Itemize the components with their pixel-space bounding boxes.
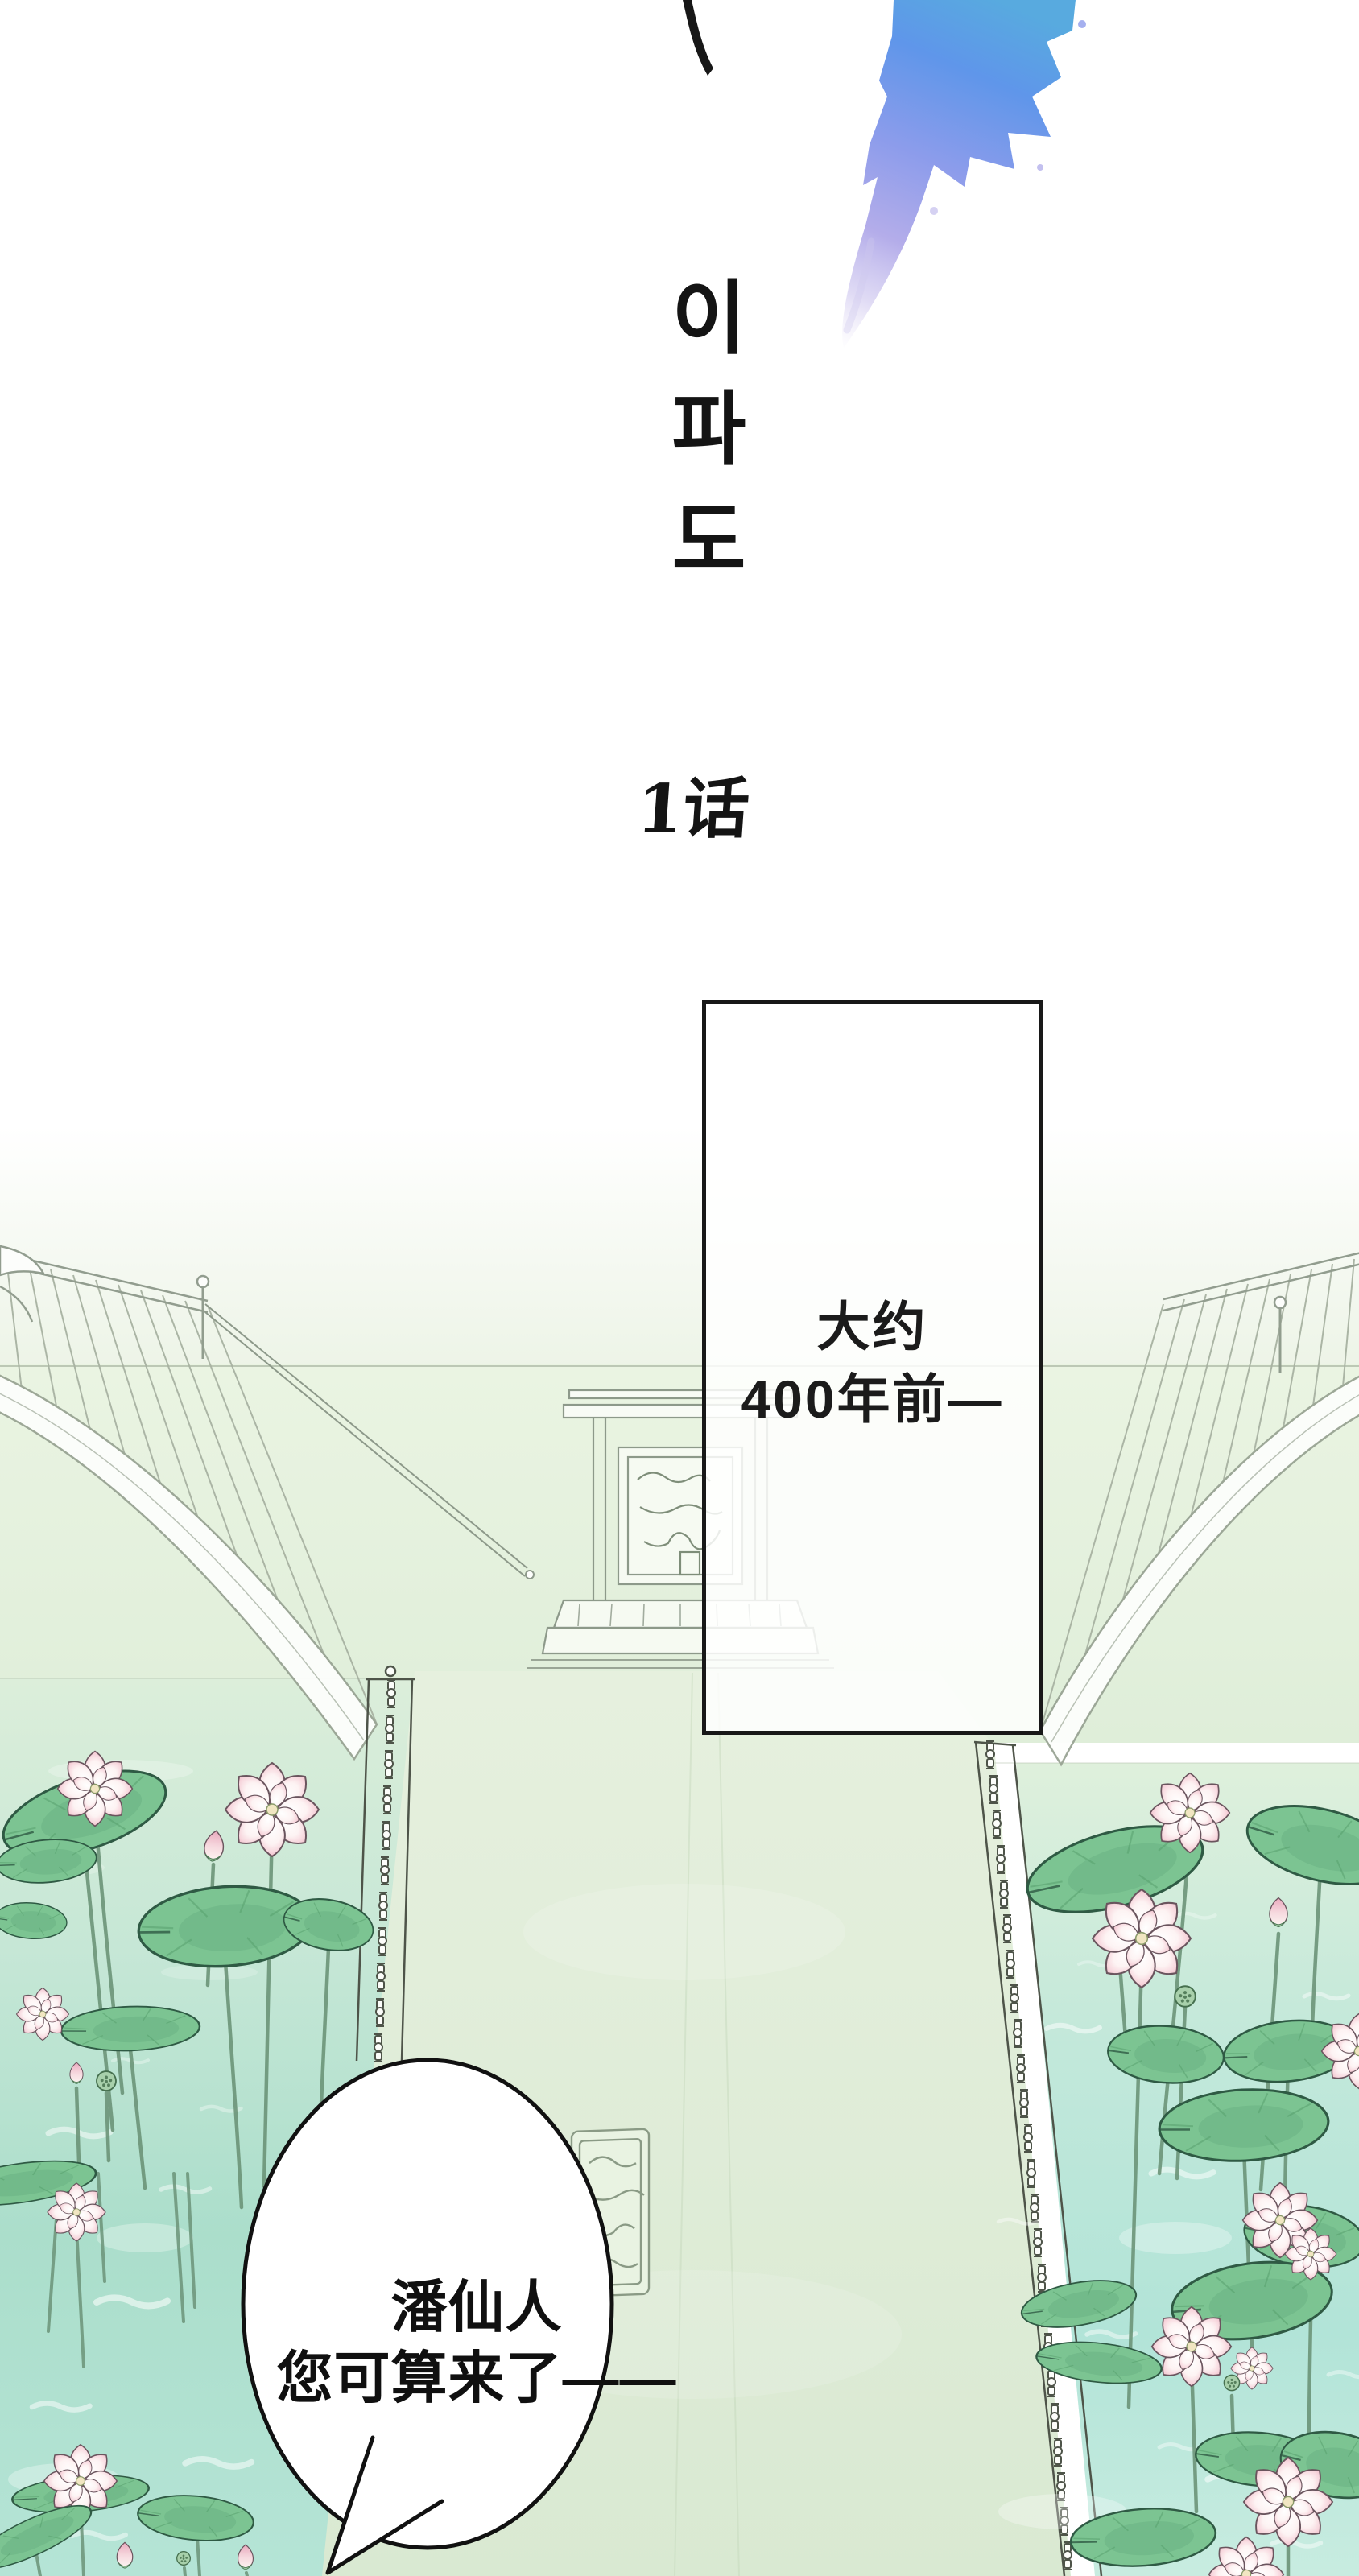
ink-brush-stroke <box>683 0 713 76</box>
webtoon-page: 이파도 1话 大约 400年前— 潘仙人 您可算来了—— <box>0 0 1359 2576</box>
episode-number-label: 1话 <box>634 755 753 851</box>
caption-box: 大约 400年前— <box>702 1000 1043 1735</box>
blue-ink-splash <box>842 0 1086 348</box>
caption-line-2: 400年前— <box>706 1363 1039 1435</box>
caption-line-1: 大约 <box>706 1290 1039 1363</box>
speech-bubble-text: 潘仙人 您可算来了—— <box>251 2272 702 2413</box>
series-title-calligraphy: 이파도 <box>662 275 742 609</box>
caption-text: 大约 400年前— <box>706 1290 1039 1435</box>
speech-line-1: 潘仙人 <box>251 2272 702 2343</box>
speech-line-2: 您可算来了—— <box>251 2343 702 2413</box>
